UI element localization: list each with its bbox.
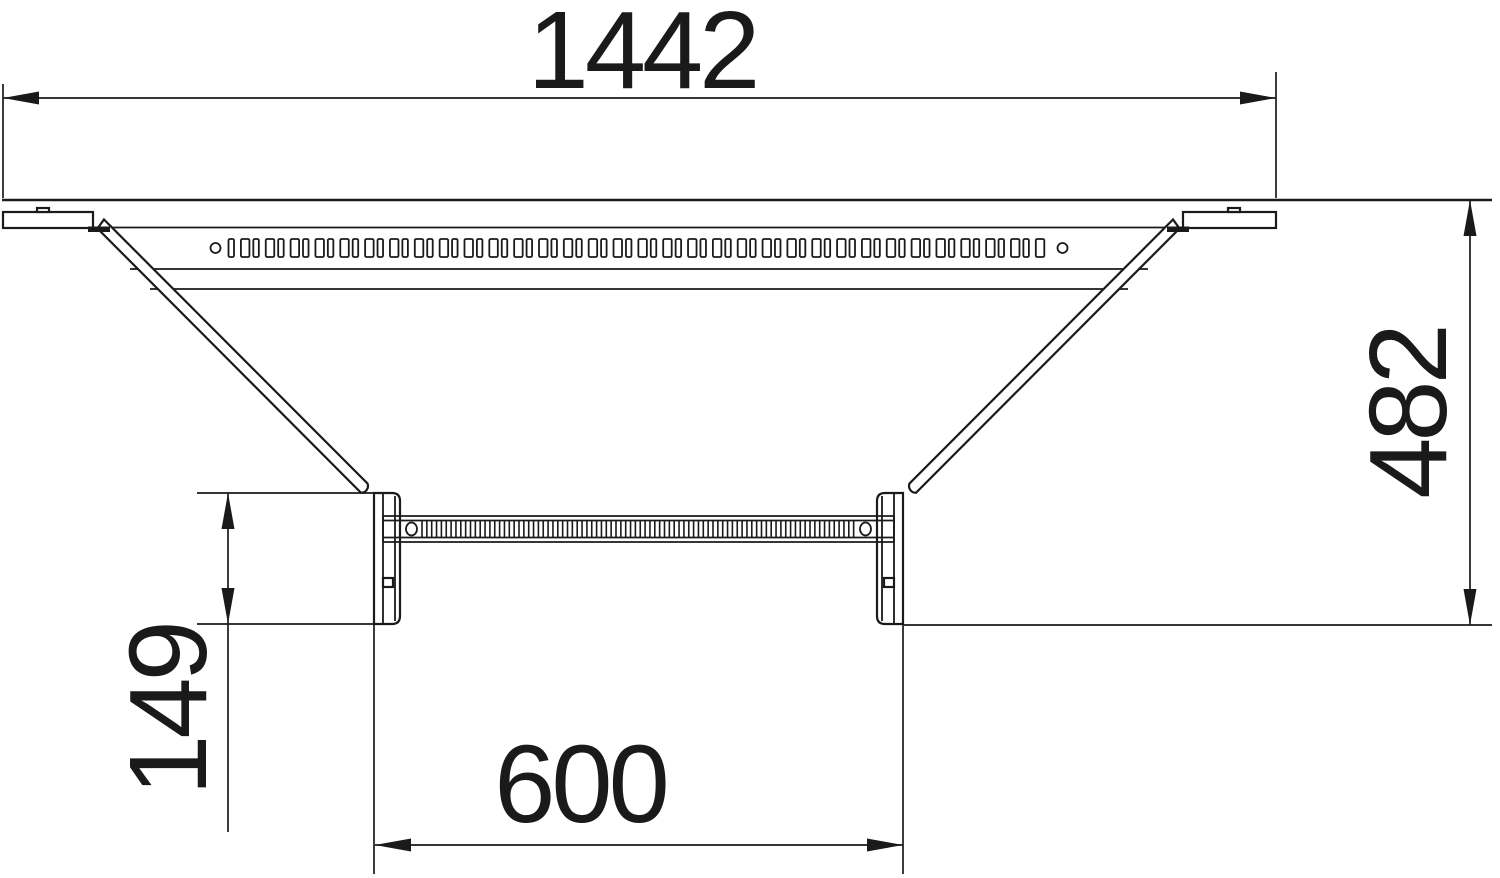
dimension-left: 149 [107,493,374,832]
rung-oval-hole-left [406,523,417,536]
dim-label-right: 482 [1347,327,1470,499]
dim-bottom-arrow-right [867,839,903,852]
dim-top-arrow-right [1240,92,1276,105]
branch-rail-left-body [374,493,400,624]
branch-rail-left [374,493,400,624]
perforation-end-hole-right [1058,243,1068,253]
perforation-slots [229,239,1045,257]
rung-oval-hole-right [860,523,871,536]
branch-rail-right-body [877,493,903,624]
branch-rung [383,516,894,542]
dim-label-top: 1442 [528,0,757,112]
branch-rail-left-latch [383,578,393,587]
left-connector-notch [37,208,49,212]
dim-label-bottom: 600 [494,723,666,846]
dim-bottom-arrow-left [375,839,411,852]
dim-right-arrow-up [1464,200,1477,236]
diagonal-rail-left [98,220,368,493]
right-connector-weld-bar [1167,227,1189,233]
left-connector [3,208,110,232]
dim-left-arrow-up [222,493,235,529]
rung-ribs [422,521,854,538]
top-perforation-strip [211,239,1068,257]
branch-diagonals [98,220,1180,493]
diagonal-rail-right [909,220,1179,493]
dim-left-arrow-down [222,588,235,624]
technical-drawing-page: 1442 482 149 600 [0,0,1500,878]
cable-ladder-tee-drawing: 1442 482 149 600 [0,0,1500,878]
left-connector-plate [3,212,93,228]
dim-top-arrow-left [3,92,39,105]
branch-rail-right [877,493,903,624]
dim-right-arrow-down [1464,589,1477,625]
dimension-bottom: 600 [374,624,903,874]
right-connector [1167,208,1276,232]
branch-rail-right-latch [884,578,894,587]
perforation-end-hole-left [211,243,221,253]
right-connector-notch [1228,208,1240,212]
dimension-top: 1442 [3,0,1276,198]
dim-label-left: 149 [107,624,230,796]
left-connector-weld-bar [88,227,110,233]
right-connector-plate [1183,212,1276,228]
